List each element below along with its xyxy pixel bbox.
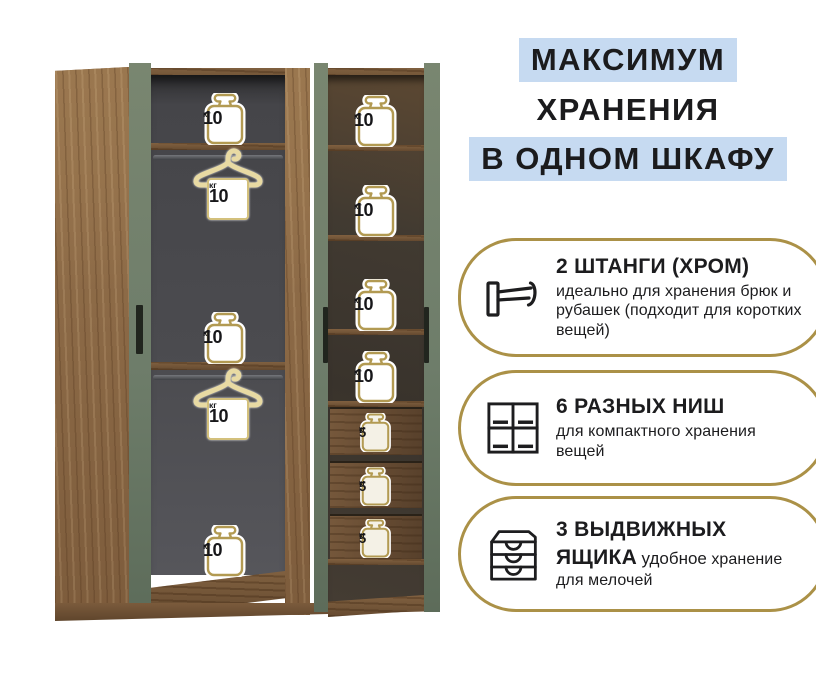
badge-unit: кг — [354, 112, 362, 121]
badge-unit: кг — [203, 329, 211, 338]
hanger-capacity-badge: 10кг — [186, 147, 270, 223]
headline-line-1: МАКСИМУМ — [519, 38, 737, 82]
wardrobe-infographic: 10кг 10кг 10кг — [0, 0, 816, 700]
drawer-weight-badge: 5кг — [359, 519, 392, 559]
shelf-niches-icon — [485, 401, 541, 455]
drawer-weight-badge: 5кг — [359, 413, 392, 453]
badge-unit: кг — [359, 426, 365, 433]
badge-unit: кг — [203, 110, 211, 119]
headline-line-2: ХРАНЕНИЯ — [524, 88, 731, 132]
feature-title: 6 РАЗНЫХ НИШ — [556, 395, 807, 419]
badge-card: 10кг — [207, 398, 249, 440]
feature-description: идеально для хранения брюк и рубашек (по… — [556, 282, 807, 341]
wardrobe-illustration: 10кг 10кг 10кг — [55, 55, 445, 627]
badge-unit: кг — [359, 532, 365, 539]
badge-unit: кг — [209, 181, 217, 190]
feature-text: 3 ВЫДВИЖНЫХ ЯЩИКА удобное хранение для м… — [556, 516, 784, 591]
weight-capacity-badge: 10кг — [354, 185, 398, 237]
badge-unit: кг — [203, 542, 211, 551]
feature-description: для компактного хранения вещей — [556, 422, 807, 461]
drawer-weight-badge: 5кг — [359, 467, 392, 507]
feature-title: 2 ШТАНГИ (ХРОМ) — [556, 255, 807, 279]
feature-title-suffix: удобное — [642, 549, 707, 568]
badge-unit: кг — [359, 480, 365, 487]
badge-card: 10кг — [207, 178, 249, 220]
feature-card-rails: 2 ШТАНГИ (ХРОМ) идеально для хранения бр… — [458, 238, 816, 357]
badge-unit: кг — [354, 368, 362, 377]
shelf — [328, 559, 424, 565]
door-handle — [323, 307, 328, 363]
weight-capacity-badge: 10кг — [203, 93, 247, 145]
hanger-capacity-badge: 10кг — [186, 367, 270, 443]
weight-capacity-badge: 10кг — [354, 279, 398, 331]
badge-unit: кг — [209, 401, 217, 410]
weight-capacity-badge: 10кг — [354, 351, 398, 403]
weight-capacity-badge: 10кг — [203, 312, 247, 364]
badge-unit: кг — [354, 202, 362, 211]
weight-capacity-badge: 10кг — [203, 525, 247, 577]
drawers-icon — [485, 527, 541, 581]
headline: МАКСИМУМ ХРАНЕНИЯ В ОДНОМ ШКАФУ — [452, 38, 804, 181]
headline-line-3: В ОДНОМ ШКАФУ — [469, 137, 786, 181]
wardrobe-open-door — [55, 67, 129, 612]
feature-card-drawers: 3 ВЫДВИЖНЫХ ЯЩИКА удобное хранение для м… — [458, 496, 816, 612]
weight-capacity-badge: 10кг — [354, 95, 398, 147]
door-handle — [136, 305, 143, 354]
badge-unit: кг — [354, 296, 362, 305]
feature-card-niches: 6 РАЗНЫХ НИШ для компактного хранения ве… — [458, 370, 816, 486]
door-handle — [424, 307, 429, 363]
cabinet-divider-panel — [285, 68, 310, 615]
clothes-rail-icon — [485, 275, 541, 321]
